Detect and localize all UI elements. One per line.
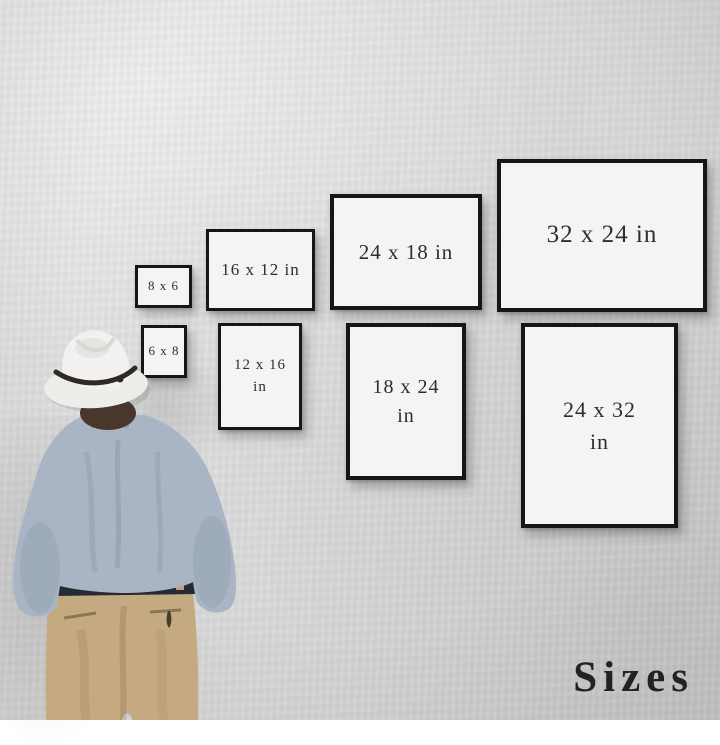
size-label-24x18: 24 x 18 in xyxy=(359,237,454,267)
size-label-18x24: 18 x 24 in xyxy=(373,373,440,431)
page-title: Sizes xyxy=(573,653,694,702)
shirt xyxy=(13,411,236,617)
frame-16x12: 16 x 12 in xyxy=(206,229,315,311)
size-line1: 24 x 32 xyxy=(563,394,636,426)
frame-24x18: 24 x 18 in xyxy=(330,194,482,310)
size-label-32x24: 32 x 24 in xyxy=(547,217,658,253)
size-label-24x32: 24 x 32 in xyxy=(563,394,636,458)
size-line1: 18 x 24 xyxy=(373,373,440,402)
scene: 8 x 6 16 x 12 in 24 x 18 in 32 x 24 in 6… xyxy=(0,0,720,720)
size-line2: in xyxy=(253,377,267,399)
frame-18x24: 18 x 24 in xyxy=(346,323,466,480)
size-line2: in xyxy=(397,402,415,431)
pants xyxy=(46,584,199,720)
man-figure xyxy=(0,320,250,720)
frame-24x32: 24 x 32 in xyxy=(521,323,678,528)
size-label-16x12: 16 x 12 in xyxy=(221,258,299,283)
frame-32x24: 32 x 24 in xyxy=(497,159,707,312)
frame-8x6: 8 x 6 xyxy=(135,265,192,308)
fedora-hat xyxy=(43,330,150,412)
size-label-8x6: 8 x 6 xyxy=(148,277,179,296)
size-line2: in xyxy=(590,426,609,458)
